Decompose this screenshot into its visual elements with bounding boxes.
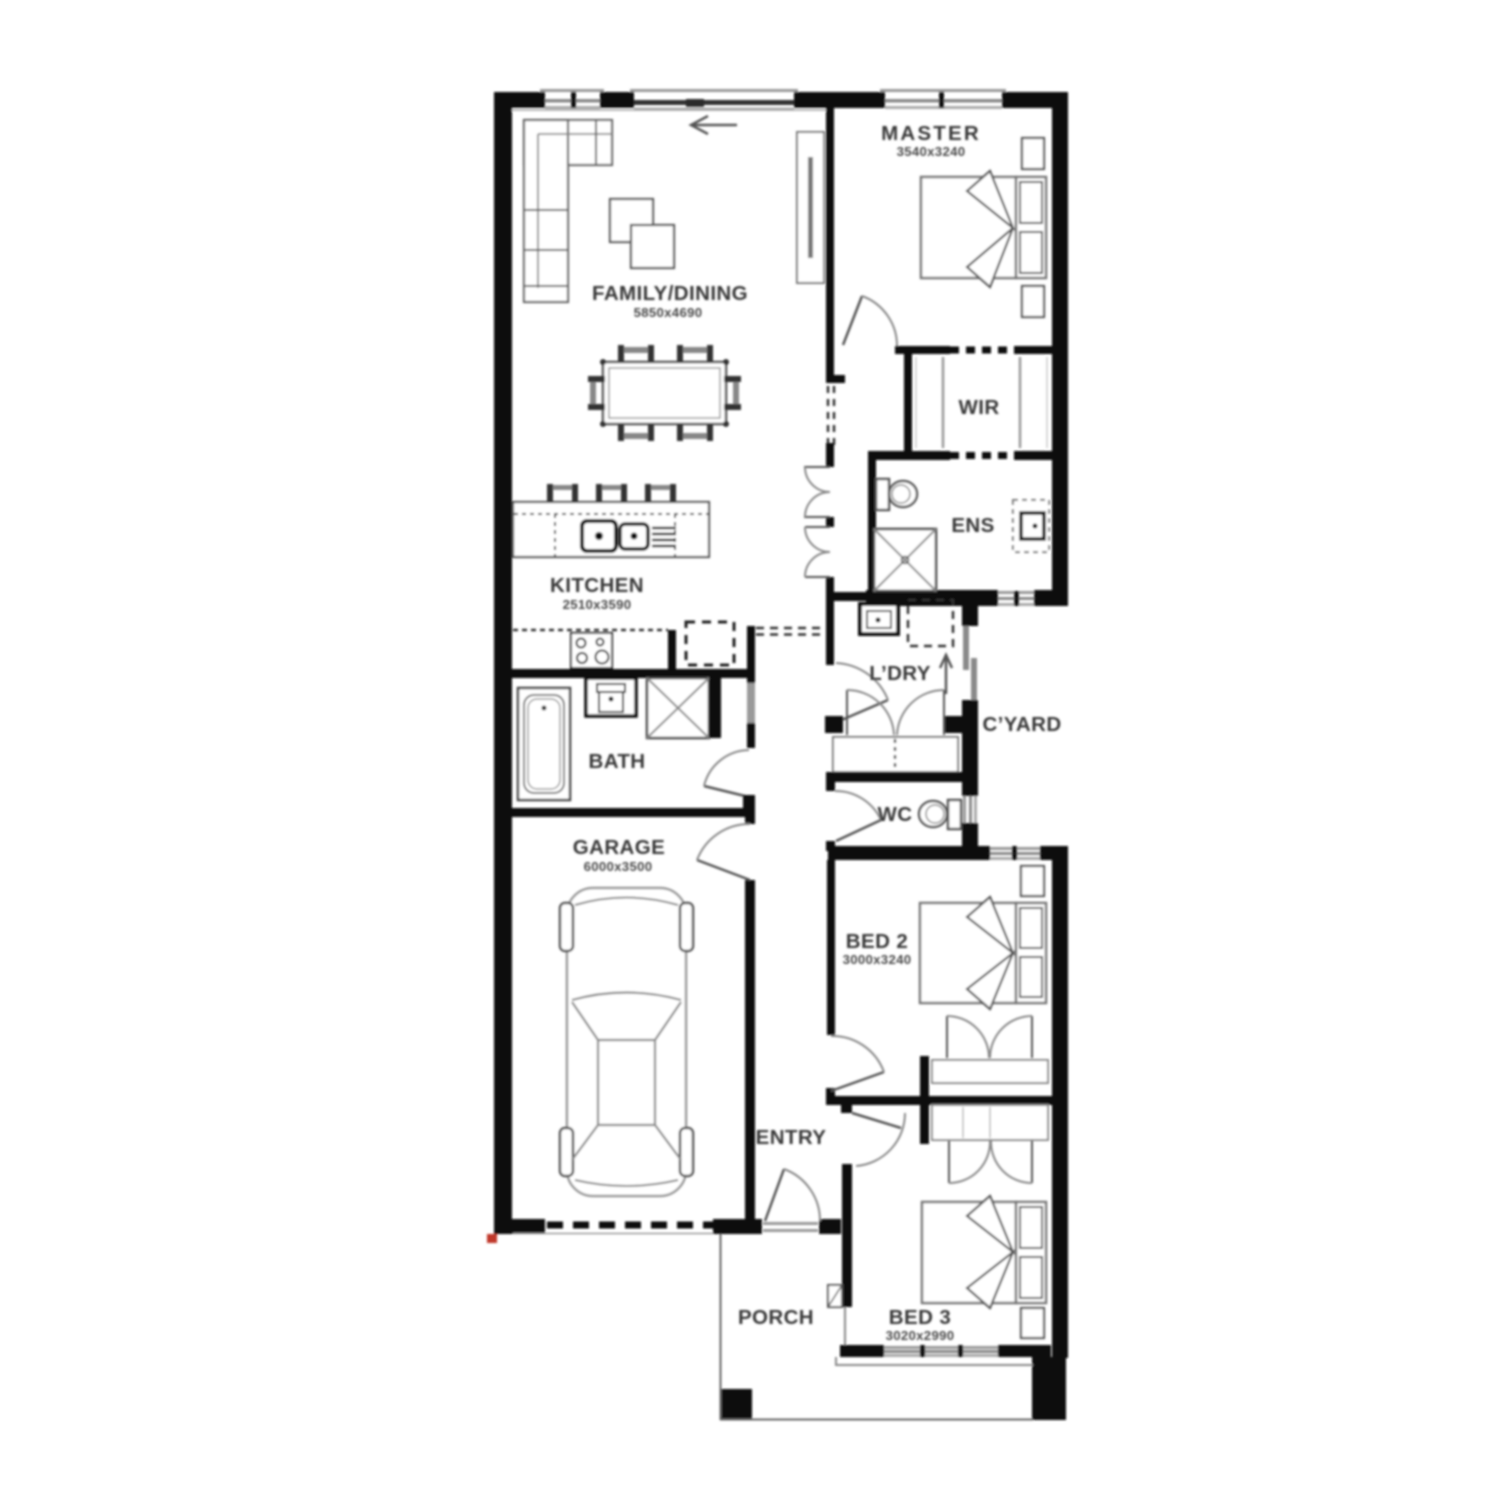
svg-text:5850x4690: 5850x4690	[634, 305, 703, 320]
svg-text:MASTER: MASTER	[881, 122, 981, 145]
svg-text:ENS: ENS	[951, 514, 994, 537]
svg-text:PORCH: PORCH	[738, 1306, 814, 1329]
svg-text:3540x3240: 3540x3240	[897, 144, 966, 159]
svg-text:BATH: BATH	[588, 750, 645, 773]
svg-text:3020x2990: 3020x2990	[886, 1328, 955, 1343]
svg-text:3000x3240: 3000x3240	[843, 952, 912, 967]
svg-text:C’YARD: C’YARD	[982, 713, 1061, 736]
svg-text:WC: WC	[878, 803, 913, 826]
svg-text:ENTRY: ENTRY	[756, 1126, 827, 1149]
svg-text:GARAGE: GARAGE	[573, 836, 665, 859]
svg-text:FAMILY/DINING: FAMILY/DINING	[592, 282, 748, 305]
svg-text:L’DRY: L’DRY	[869, 662, 931, 685]
svg-text:2510x3590: 2510x3590	[563, 597, 632, 612]
svg-text:KITCHEN: KITCHEN	[550, 574, 644, 597]
svg-text:BED 2: BED 2	[846, 930, 908, 953]
svg-text:WIR: WIR	[958, 396, 999, 419]
svg-text:6000x3500: 6000x3500	[584, 859, 653, 874]
svg-text:BED 3: BED 3	[889, 1306, 951, 1329]
